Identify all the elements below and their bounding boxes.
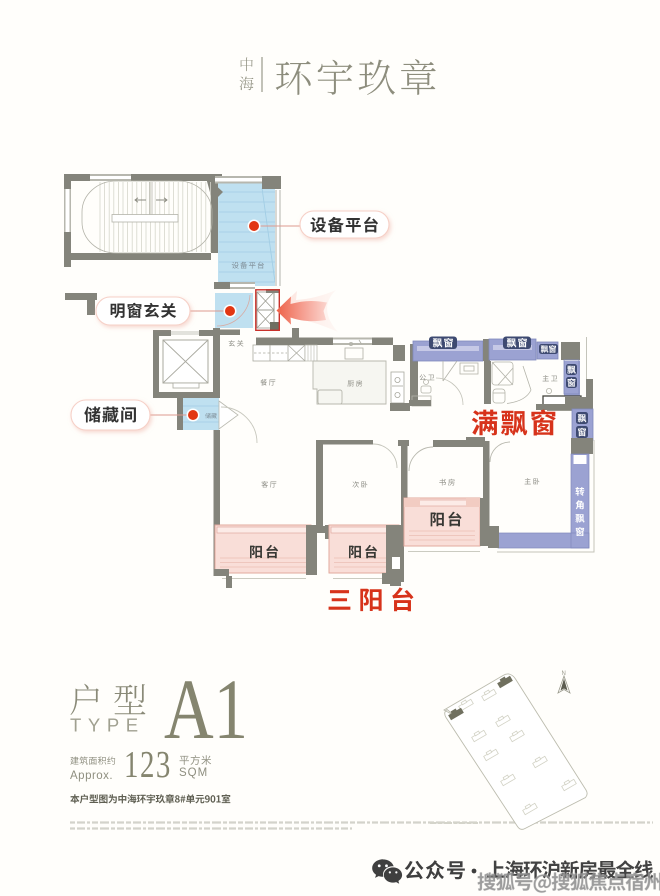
svg-text:Approx.: Approx. — [70, 770, 113, 782]
svg-text:SQM: SQM — [179, 767, 208, 779]
svg-text:A1: A1 — [164, 662, 248, 757]
svg-text:N: N — [562, 671, 566, 677]
svg-text:123: 123 — [124, 744, 172, 786]
svg-text:TYPE: TYPE — [70, 715, 145, 736]
